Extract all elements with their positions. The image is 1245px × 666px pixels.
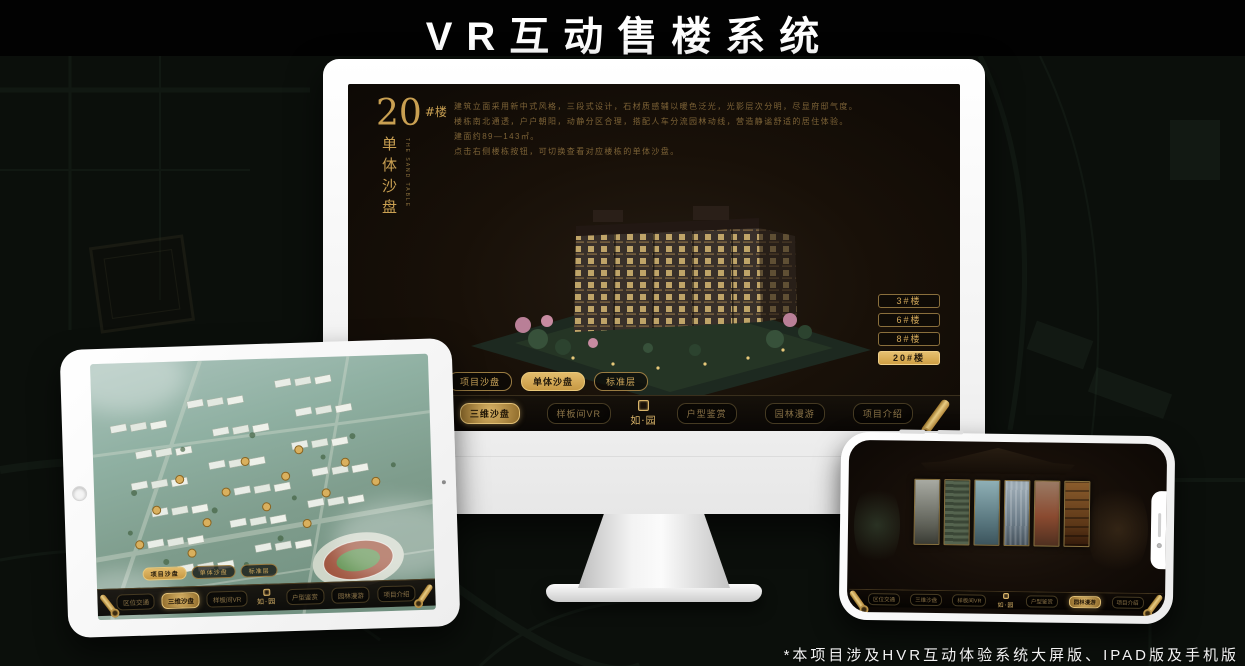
- gallery-panel[interactable]: [943, 479, 970, 545]
- nav-item[interactable]: 区位交通: [868, 593, 900, 605]
- pavilion-roof: [921, 447, 1075, 475]
- nav-item[interactable]: 三维沙盘: [910, 593, 942, 605]
- mode-tab[interactable]: 单体沙盘: [521, 372, 585, 391]
- phone-bottom-nav: 区位交通三维沙盘样板间VR 如·园 户型鉴赏园林漫游项目介绍: [849, 589, 1163, 611]
- phone-volume-button: [937, 430, 963, 434]
- nav-item[interactable]: 园林漫游: [331, 587, 369, 604]
- nav-item[interactable]: 样板间VR: [952, 594, 986, 606]
- nav-item[interactable]: 三维沙盘: [162, 592, 200, 609]
- nav-group-left: 区位交通三维沙盘样板间VR: [863, 592, 992, 606]
- nav-item[interactable]: 项目介绍: [1111, 596, 1143, 608]
- nav-item[interactable]: 户型鉴赏: [1026, 595, 1058, 607]
- footnote: *本项目涉及HVR互动体验系统大屏版、IPAD版及手机版: [784, 644, 1239, 665]
- tablet-screen: 项目沙盘单体沙盘标准层 区位交通三维沙盘样板间VR 如·园 户型鉴赏园林漫游项目…: [90, 354, 436, 620]
- nav-item[interactable]: 区位交通: [117, 593, 155, 610]
- nav-item[interactable]: 户型鉴赏: [677, 403, 737, 424]
- description-line: 楼栋南北通透，户户朝阳，动静分区合理，搭配人车分流园林动线，营造静谧舒适的居住体…: [454, 114, 894, 129]
- mode-tab[interactable]: 单体沙盘: [191, 565, 235, 579]
- gallery-panel[interactable]: [1063, 481, 1090, 547]
- phone-notch: [1150, 491, 1167, 569]
- nav-item[interactable]: 样板间VR: [547, 403, 612, 424]
- building-button[interactable]: 8#楼: [878, 332, 940, 346]
- page-title: VR互动售楼系统: [0, 4, 1245, 62]
- building-render: [443, 136, 893, 406]
- nav-group-right: 户型鉴赏园林漫游项目介绍: [663, 403, 927, 424]
- tablet-camera-icon: [442, 480, 446, 484]
- mode-tab[interactable]: 标准层: [240, 563, 277, 577]
- nav-group-right: 户型鉴赏园林漫游项目介绍: [1020, 595, 1149, 609]
- nav-item[interactable]: 项目介绍: [377, 585, 415, 602]
- nav-item[interactable]: 户型鉴赏: [286, 588, 324, 605]
- stand-neck: [578, 514, 730, 588]
- phone-volume-button: [899, 429, 925, 433]
- nav-group-right: 户型鉴赏园林漫游项目介绍: [282, 585, 420, 605]
- brand-logo: 如·园: [997, 592, 1014, 608]
- mode-tab[interactable]: 项目沙盘: [448, 372, 512, 391]
- phone-screen: 区位交通三维沙盘样板间VR 如·园 户型鉴赏园林漫游项目介绍: [847, 440, 1167, 616]
- building-button-list: 3#楼6#楼8#楼20#楼: [878, 294, 940, 365]
- brand-logo: 如·园: [630, 400, 656, 427]
- phone-camera-icon: [1156, 543, 1161, 548]
- brand-seal-icon: [638, 400, 649, 411]
- brand-name: 如·园: [257, 597, 277, 608]
- mode-tab[interactable]: 项目沙盘: [142, 566, 186, 580]
- nav-item[interactable]: 样板间VR: [207, 590, 248, 607]
- nav-group-left: 区位交通三维沙盘样板间VR: [113, 590, 251, 610]
- brand-logo: 如·园: [257, 589, 277, 608]
- brand-name: 如·园: [630, 412, 656, 427]
- building-number: 20: [376, 97, 422, 131]
- scene-gallery: [913, 479, 1090, 547]
- phone-device: 区位交通三维沙盘样板间VR 如·园 户型鉴赏园林漫游项目介绍: [839, 432, 1176, 625]
- building-headline: 20 #楼 单体沙盘 THE SAND TABLE: [376, 97, 447, 220]
- building-button[interactable]: 3#楼: [878, 294, 940, 308]
- building-button[interactable]: 6#楼: [878, 313, 940, 327]
- brand-seal-icon: [263, 589, 270, 596]
- nav-item[interactable]: 项目介绍: [853, 403, 913, 424]
- interior-glow: [1087, 479, 1148, 580]
- mode-tab[interactable]: 标准层: [594, 372, 648, 391]
- nav-item[interactable]: 园林漫游: [765, 403, 825, 424]
- brand-name: 如·园: [997, 599, 1014, 608]
- garden-glow: [853, 480, 900, 571]
- headline-subtitle: 单体沙盘: [379, 136, 400, 220]
- building-number-suffix: #楼: [425, 103, 447, 120]
- gallery-panel[interactable]: [973, 480, 1000, 546]
- nav-item[interactable]: 三维沙盘: [460, 403, 520, 424]
- phone-speaker-icon: [1157, 513, 1160, 537]
- brand-seal-icon: [1003, 592, 1009, 598]
- building-button[interactable]: 20#楼: [878, 351, 940, 365]
- gallery-panel[interactable]: [1003, 480, 1030, 546]
- mode-tab-list: 项目沙盘单体沙盘标准层: [448, 372, 648, 391]
- tablet-home-button[interactable]: [72, 486, 87, 501]
- headline-caption: THE SAND TABLE: [404, 138, 410, 220]
- gallery-panel[interactable]: [1033, 480, 1060, 546]
- nav-item[interactable]: 园林漫游: [1069, 595, 1101, 607]
- tablet-device: 项目沙盘单体沙盘标准层 区位交通三维沙盘样板间VR 如·园 户型鉴赏园林漫游项目…: [60, 338, 461, 638]
- gallery-panel[interactable]: [913, 479, 940, 545]
- description-line: 建筑立面采用新中式风格，三段式设计，石材质感辅以暖色泛光，光影层次分明，尽显府邸…: [454, 99, 894, 114]
